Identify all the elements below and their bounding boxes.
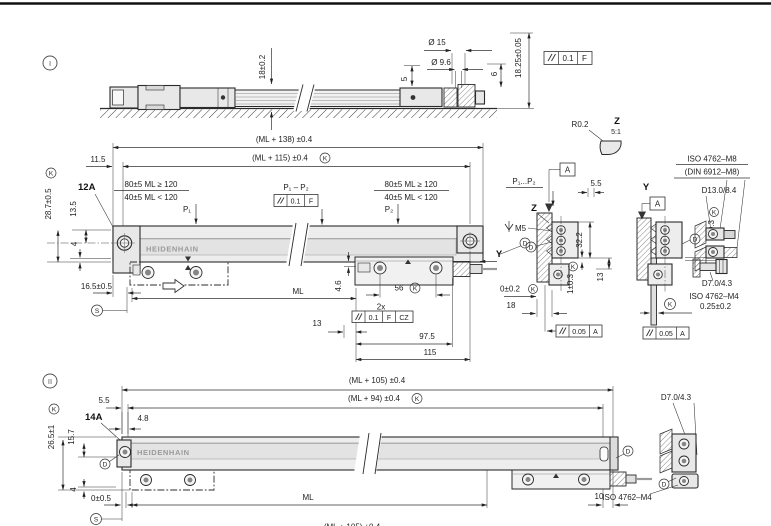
view2-plan-view: II (ML + 105) ±0.4 (ML + 94) ±0.4 K 5.5 … xyxy=(43,374,698,526)
dim-165: 16.5±0.5 xyxy=(81,282,113,291)
fcf-top-value: 0.1 xyxy=(562,54,574,63)
detail-label: Z xyxy=(614,116,620,127)
section-y-label: Y xyxy=(643,182,650,193)
iso-m4-label: ISO 4762–M4 xyxy=(689,292,739,301)
dim-0-05: 0±0.5 xyxy=(91,494,112,503)
heidenhain-logo: HEIDENHAIN xyxy=(137,448,190,457)
circled-s-ref-v2: S xyxy=(91,514,123,525)
svg-text:80±5 ML ≥ 120: 80±5 ML ≥ 120 xyxy=(385,180,439,189)
dim-1825: 18.25±0.05 xyxy=(514,37,523,78)
dim-4-v2: 4 xyxy=(69,487,78,492)
dim-115-offset: 11.5 xyxy=(91,155,107,164)
svg-text:40±5 ML < 120: 40±5 ML < 120 xyxy=(384,193,438,202)
svg-text:F: F xyxy=(387,315,391,322)
section-z-label: Z xyxy=(531,203,537,214)
cross-section-z: A P₁...P₂ 5.5 Z M5 D 32.2 xyxy=(505,163,612,337)
svg-text:K: K xyxy=(415,396,420,403)
ref-14a-label: 14A xyxy=(85,412,103,423)
dim-287: 28.7±0.5 xyxy=(44,188,53,220)
svg-text:D: D xyxy=(662,482,667,489)
circled-k-y: K xyxy=(665,299,676,310)
dim-6: 6 xyxy=(490,71,499,76)
svg-text:S: S xyxy=(94,517,99,524)
datum-a-flag: A xyxy=(638,197,665,220)
dim-ml-v2: ML xyxy=(302,493,314,502)
m5-label: M5 xyxy=(515,224,527,233)
dim-135: 13.5 xyxy=(69,201,78,217)
view2-marker-label: II xyxy=(48,377,52,386)
p1p2-range-label: P₁...P₂ xyxy=(512,177,535,186)
mounting-rail-left xyxy=(130,262,228,285)
dim-dia-15: Ø 15 xyxy=(428,38,446,47)
fcf-top-datum: F xyxy=(582,54,587,63)
detail-z-callout: R0.2 Z 5:1 xyxy=(572,116,622,155)
encoder-dimension-drawing: I 18±0.2 Ø 15 xyxy=(0,0,771,526)
svg-text:K: K xyxy=(323,156,328,163)
dim-2x: 2x xyxy=(377,303,385,312)
ref-14a: 14A xyxy=(85,412,120,440)
dim-4: 4 xyxy=(70,241,79,246)
circled-s-ref: S xyxy=(92,305,128,316)
dim-5: 5 xyxy=(400,76,409,81)
m4-screw-side xyxy=(693,259,727,277)
scanning-unit-v2 xyxy=(512,470,652,489)
circled-k-265: K xyxy=(49,404,59,414)
encoder-side-profile xyxy=(110,85,485,112)
view1-plan-view: (ML + 138) ±0.4 (ML + 115) ±0.4 K 11.5 1… xyxy=(44,135,567,362)
dim-ml138: (ML + 138) ±0.4 xyxy=(256,135,313,144)
svg-text:D: D xyxy=(529,245,534,252)
circled-k-y103: K xyxy=(710,208,719,217)
mounting-rail-left-v2 xyxy=(130,470,214,490)
dim-ml105: (ML + 105) ±0.4 xyxy=(349,376,406,385)
circled-k-ml115: K xyxy=(320,153,330,163)
ref-12a: 12A xyxy=(78,182,113,227)
fcf-parallelism-cz: 0.1 F CZ xyxy=(352,311,413,323)
dim-025: 0.25±0.2 xyxy=(700,302,732,311)
svg-text:D: D xyxy=(103,462,108,469)
dim-115b: 115 xyxy=(424,348,437,357)
iso-m4-label-v2: ISO 4762–M4 xyxy=(602,493,652,502)
circled-k-z103: K xyxy=(569,262,578,271)
view1-marker-icon: I xyxy=(43,56,57,70)
svg-text:K: K xyxy=(668,302,673,309)
svg-text:K: K xyxy=(531,286,536,293)
d1384-label: D13.0/8.4 xyxy=(702,186,737,195)
svg-text:F: F xyxy=(309,199,313,206)
svg-text:0.1: 0.1 xyxy=(369,315,379,322)
dim-ml: ML xyxy=(292,287,304,296)
dim-975: 97.5 xyxy=(419,332,435,341)
dim-ml115: (ML + 115) ±0.4 xyxy=(252,154,308,163)
svg-text:A: A xyxy=(565,166,571,175)
dim-dia-96: Ø 9.6 xyxy=(431,58,451,67)
din-m8-label: (DIN 6912–M8) xyxy=(685,168,740,177)
svg-text:A: A xyxy=(593,329,598,336)
view1-side-elevation: I 18±0.2 Ø 15 xyxy=(43,33,621,155)
svg-text:A: A xyxy=(655,200,661,209)
dim-48: 4.8 xyxy=(137,414,149,423)
dim-z-103: 1±0.3 xyxy=(566,273,575,294)
fcf-parallelism-y: 0.05 A xyxy=(643,327,689,339)
dim-18b: 18 xyxy=(507,301,516,310)
scale-body-v2: HEIDENHAIN xyxy=(117,433,618,474)
ref-12a-label: 12A xyxy=(78,182,96,193)
svg-text:K: K xyxy=(49,171,54,178)
dim-z-13: 13 xyxy=(596,272,605,281)
svg-text:0.05: 0.05 xyxy=(659,331,673,338)
svg-text:0.1: 0.1 xyxy=(291,199,301,206)
detail-radius: R0.2 xyxy=(572,120,589,129)
dim-13: 13 xyxy=(313,319,322,328)
svg-text:K: K xyxy=(413,286,418,293)
dim-322: 32.2 xyxy=(575,232,584,248)
p1-label: P₁ xyxy=(183,205,191,214)
dim-0-02: 0±0.2 xyxy=(500,285,521,294)
svg-text:80±5 ML ≥ 120: 80±5 ML ≥ 120 xyxy=(125,180,179,189)
dim-ml94: (ML + 94) ±0.4 xyxy=(348,394,400,403)
svg-text:40±5 ML < 120: 40±5 ML < 120 xyxy=(124,193,178,202)
countersink-icon xyxy=(505,221,513,232)
svg-text:D: D xyxy=(626,449,631,456)
circled-k-ml94: K xyxy=(412,394,422,404)
svg-text:CZ: CZ xyxy=(399,315,409,322)
p2-label: P₂ xyxy=(385,205,393,214)
svg-text:A: A xyxy=(680,331,685,338)
d7043-label-v2: D7.0/4.3 xyxy=(661,393,692,402)
dim-bottom-clipped: (ML + 105) ±0.4 xyxy=(324,523,381,526)
p1-p2-tolerance: P₁ – P₂ 0.1 F xyxy=(274,183,322,225)
view2-marker-icon: II xyxy=(43,374,57,388)
detail-scale: 5:1 xyxy=(611,129,621,136)
direction-arrow-icon xyxy=(163,280,184,293)
iso-m8-label: ISO 4762–M8 xyxy=(687,155,737,164)
ml-dimension: ML xyxy=(132,280,356,339)
datum-a-flag: A xyxy=(545,163,575,212)
dim-height-18: 18±0.2 xyxy=(258,54,267,79)
dim-157: 15.7 xyxy=(67,429,76,445)
dim-56: 56 xyxy=(395,284,404,293)
clamp-spacing-right: 80±5 ML ≥ 120 40±5 ML < 120 P₂ xyxy=(374,180,449,224)
mounting-screw-detail: ISO 4762–M8 (DIN 6912–M8) D13.0/8.4 D7.0… xyxy=(674,155,750,302)
d7043-label: D7.0/4.3 xyxy=(702,279,733,288)
fcf-parallelism-top: 0.1 F xyxy=(544,52,592,65)
svg-text:K: K xyxy=(571,264,576,271)
view1-marker-label: I xyxy=(49,59,51,68)
svg-text:0.05: 0.05 xyxy=(572,329,586,336)
datum-offset-dims: 0±0.2 K 18 xyxy=(500,285,567,318)
circled-k-287: K xyxy=(46,168,56,178)
circled-d-right-end: D xyxy=(498,238,530,255)
circled-k-002: K xyxy=(529,285,538,294)
svg-text:K: K xyxy=(712,209,717,216)
dim-265: 26.5±1 xyxy=(47,424,56,449)
svg-text:S: S xyxy=(95,308,100,315)
dim-55-section: 5.5 xyxy=(590,179,602,188)
dim-46: 4.6 xyxy=(334,280,343,292)
dim-55-v2: 5.5 xyxy=(98,396,110,405)
p1p2-label: P₁ – P₂ xyxy=(283,183,308,192)
heidenhain-logo: HEIDENHAIN xyxy=(146,245,199,254)
clamp-spacing-left: 80±5 ML ≥ 120 40±5 ML < 120 P₁ xyxy=(114,180,196,224)
svg-text:K: K xyxy=(52,407,57,414)
